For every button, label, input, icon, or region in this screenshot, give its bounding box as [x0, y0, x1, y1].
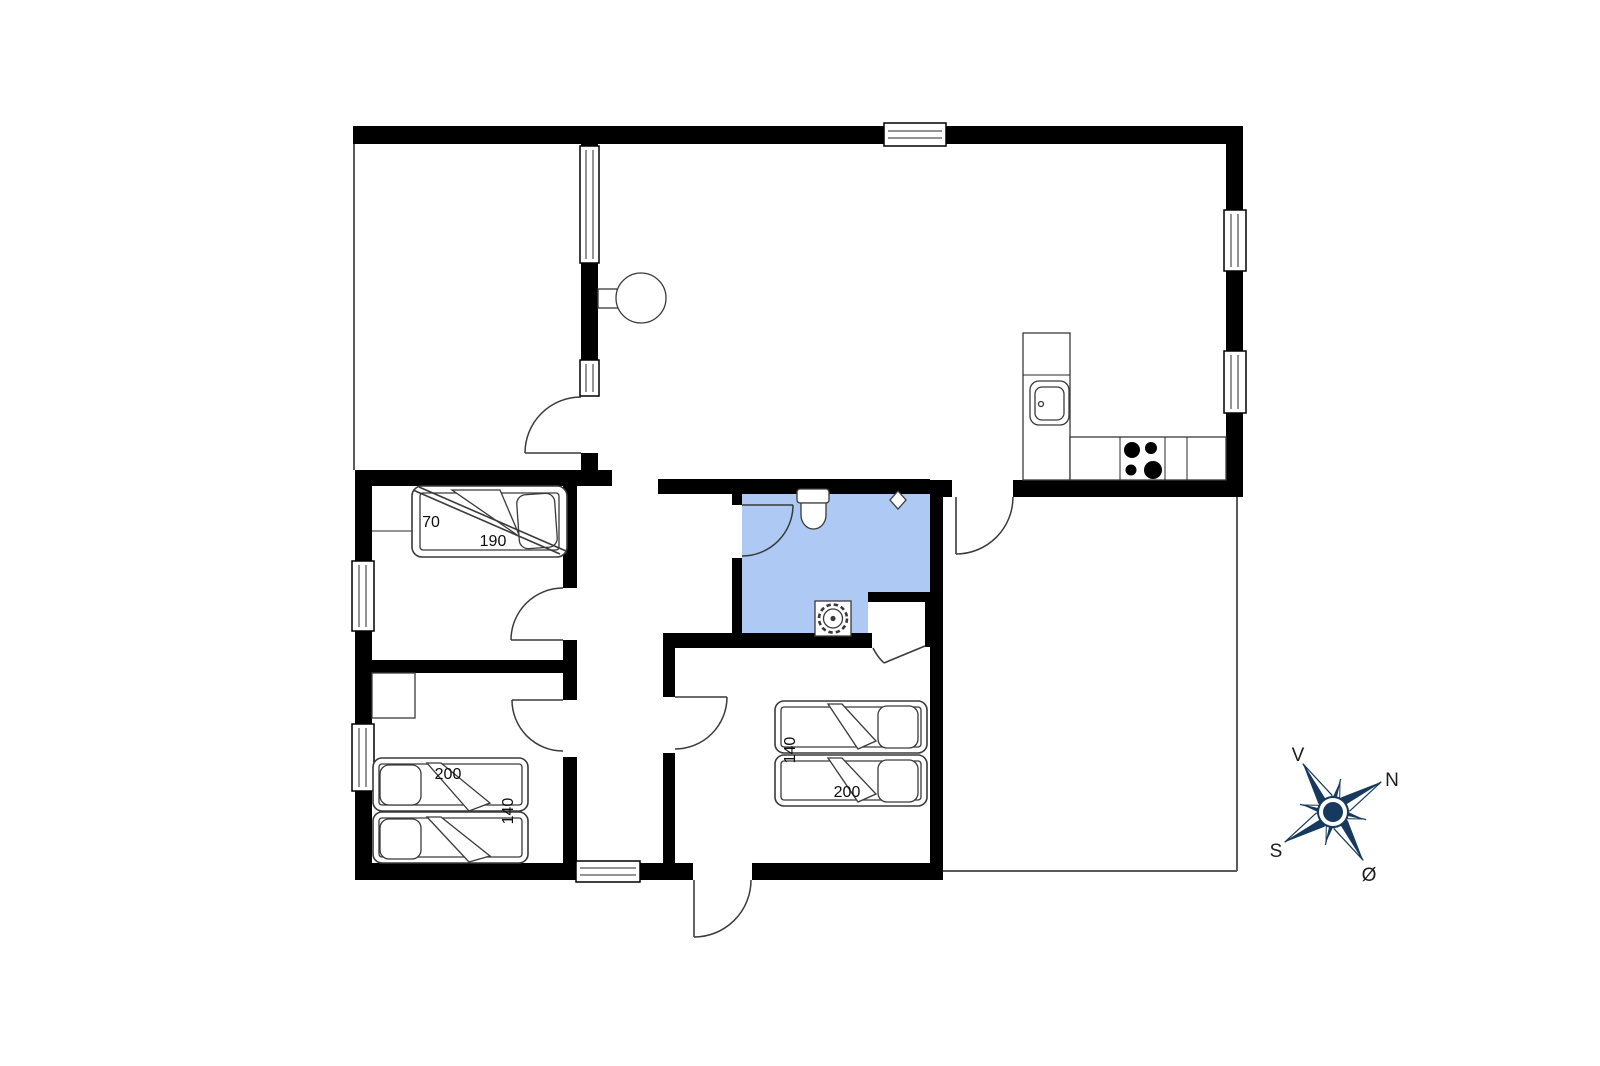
- wall-segment: [732, 558, 742, 645]
- wall-segment: [563, 757, 577, 863]
- dimension-label: 70: [422, 514, 440, 531]
- floorplan-page: 70 190 200 140: [0, 0, 1600, 1066]
- dimension-label: 140: [500, 798, 517, 825]
- left-bedroom: 200 140: [372, 673, 528, 863]
- wall-segment: [732, 483, 742, 505]
- compass-label-north: N: [1385, 770, 1399, 791]
- wall-segment: [930, 483, 943, 873]
- wall-segment: [1013, 480, 1243, 497]
- dimension-label: 190: [480, 533, 507, 550]
- compass-rose: V N S Ø: [1254, 733, 1411, 890]
- window-east-lower: [1224, 351, 1246, 413]
- door-left-bedroom: [512, 700, 563, 751]
- floor-drain-icon: [815, 601, 851, 636]
- window-east-upper: [1224, 210, 1246, 271]
- window-terrace-wall-upper: [580, 146, 599, 263]
- wall-segment: [355, 660, 577, 673]
- wall-segment: [663, 753, 675, 863]
- sink-icon: [1030, 381, 1069, 425]
- wall-segment: [1226, 126, 1243, 497]
- window-south-wall: [576, 861, 640, 882]
- dimension-label: 200: [834, 784, 861, 801]
- door-bunk-bedroom: [511, 588, 563, 640]
- compass-label-west: V: [1292, 745, 1305, 766]
- door-entrance: [694, 880, 751, 937]
- door-terrace-room: [525, 397, 581, 453]
- compass-star: [1254, 733, 1411, 890]
- door-kitchen-terrace: [956, 497, 1013, 554]
- wall-segment: [355, 470, 372, 880]
- window-west-bunkroom: [352, 561, 374, 631]
- dimension-label: 140: [782, 737, 799, 764]
- bunk-bedroom: 70 190: [372, 486, 567, 557]
- wall-segment: [868, 592, 935, 602]
- door-closet: [873, 646, 925, 663]
- wall-segment: [925, 592, 935, 647]
- compass-label-east: Ø: [1362, 865, 1377, 886]
- kitchen-counter: [1023, 333, 1226, 480]
- floorplan-canvas: 70 190 200 140: [0, 0, 1600, 1066]
- compass-label-south: S: [1270, 841, 1283, 862]
- door-mid-bedroom: [675, 697, 727, 749]
- wall-segment: [353, 126, 1243, 144]
- dimension-label: 200: [435, 766, 462, 783]
- wall-segment: [752, 863, 943, 880]
- wall-segment: [658, 479, 930, 494]
- closet: [372, 673, 415, 718]
- wall-segment: [581, 453, 598, 472]
- wood-stove-icon: [598, 273, 666, 323]
- window-west-bedroom: [352, 724, 374, 791]
- wall-segment: [581, 261, 598, 362]
- mid-bedroom: 140 200: [775, 701, 927, 806]
- wall-segment: [663, 637, 675, 697]
- window-terrace-wall-lower: [580, 360, 599, 396]
- wall-segment: [355, 863, 693, 880]
- window-top-wall: [884, 123, 946, 146]
